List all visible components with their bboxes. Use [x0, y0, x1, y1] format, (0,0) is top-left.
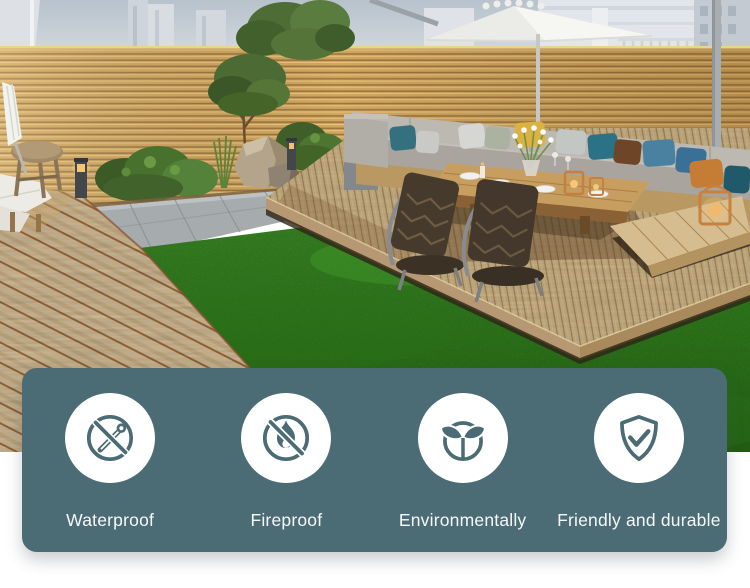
- umbrella-pole: [536, 34, 540, 122]
- no-fire-icon: [241, 393, 331, 483]
- shield-check-icon: [594, 393, 684, 483]
- feature-environmentally: Environmentally: [375, 368, 551, 530]
- feature-label: Friendly and durable: [557, 512, 721, 530]
- features-banner: Waterproof Fireproof: [22, 368, 727, 552]
- feature-label: Environmentally: [399, 512, 527, 530]
- feature-fireproof: Fireproof: [198, 368, 374, 530]
- page: Waterproof Fireproof: [0, 0, 750, 588]
- bollard-light-far: [286, 138, 297, 170]
- eco-plant-icon: [418, 393, 508, 483]
- feature-durable: Friendly and durable: [551, 368, 727, 530]
- feature-label: Waterproof: [66, 512, 154, 530]
- no-water-drop-icon: [65, 393, 155, 483]
- feature-label: Fireproof: [250, 512, 322, 530]
- feature-waterproof: Waterproof: [22, 368, 198, 530]
